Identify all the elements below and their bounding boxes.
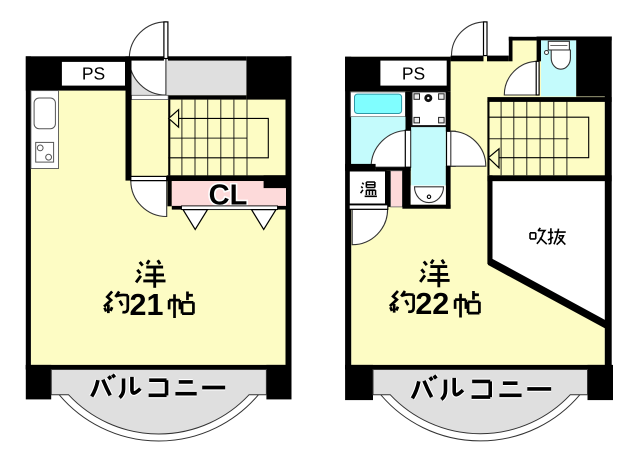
svg-text:PS: PS [402,63,425,83]
svg-text:21: 21 [130,288,164,322]
svg-text:PS: PS [82,64,105,84]
svg-text:22: 22 [415,287,449,321]
